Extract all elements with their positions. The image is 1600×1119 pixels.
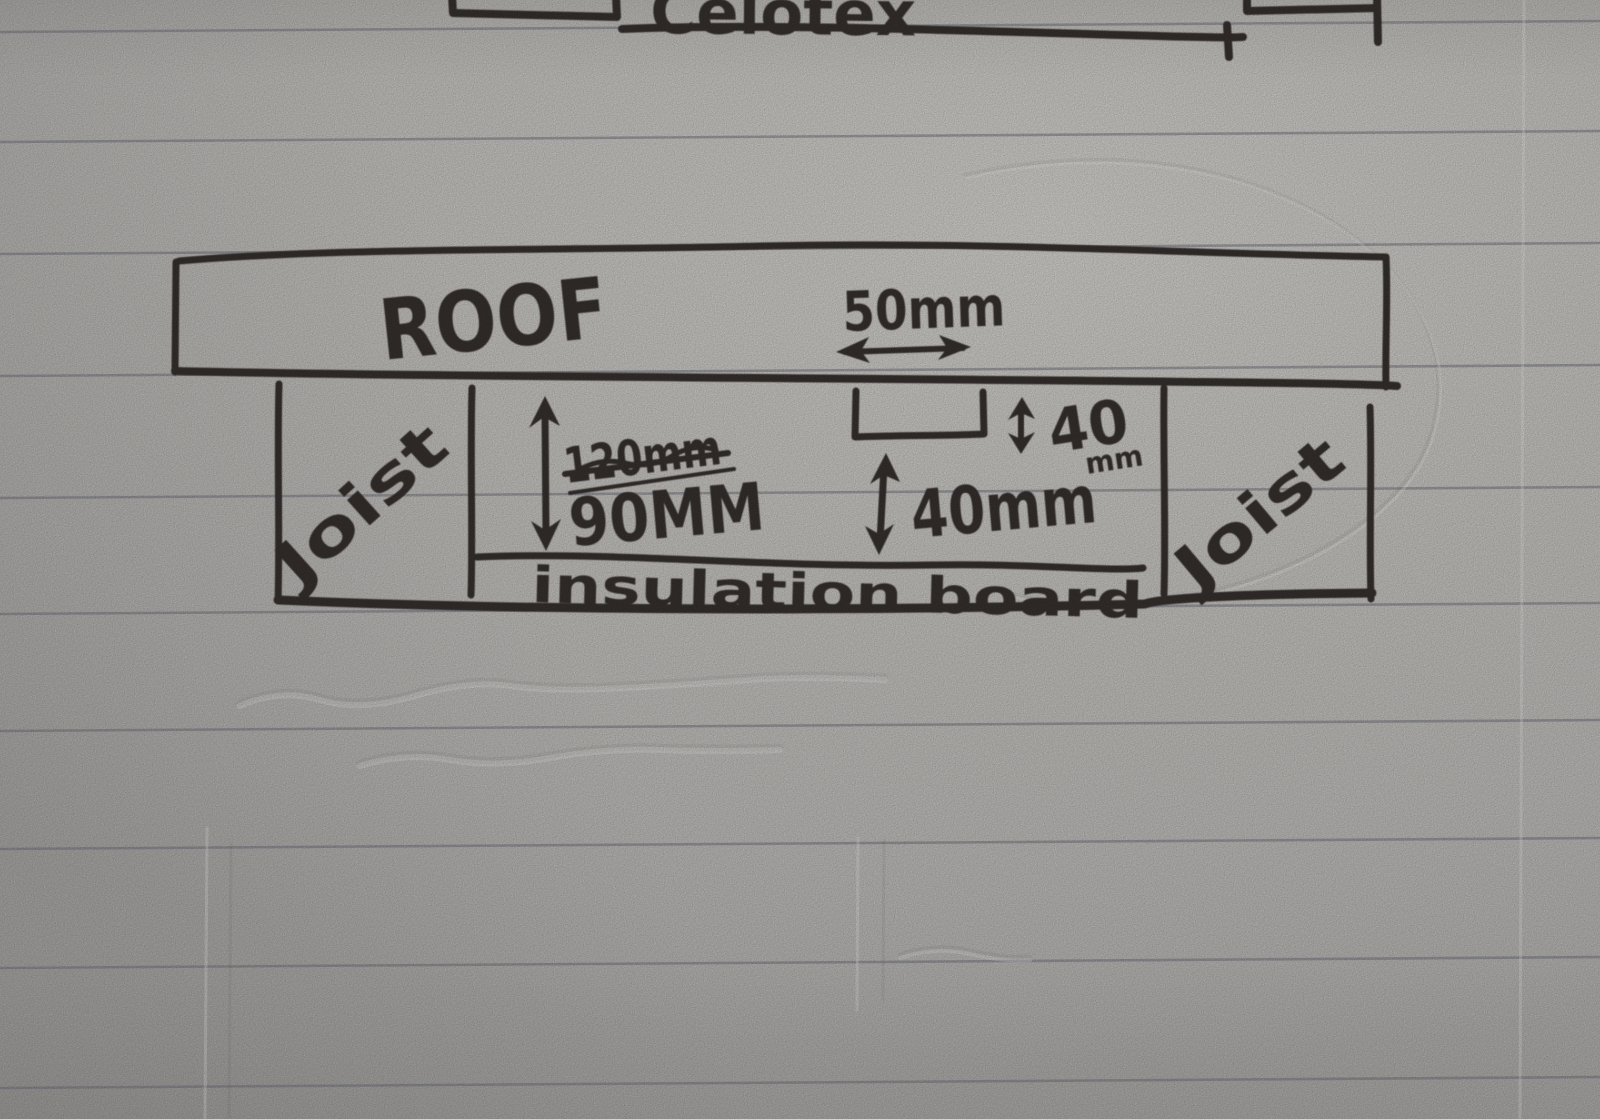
paper-grain xyxy=(0,0,1600,1119)
notebook-paper-photo: Celotex ROOF 50mm 40 mm xyxy=(0,0,1600,1119)
sketch-svg: Celotex ROOF 50mm 40 mm xyxy=(0,0,1600,1119)
